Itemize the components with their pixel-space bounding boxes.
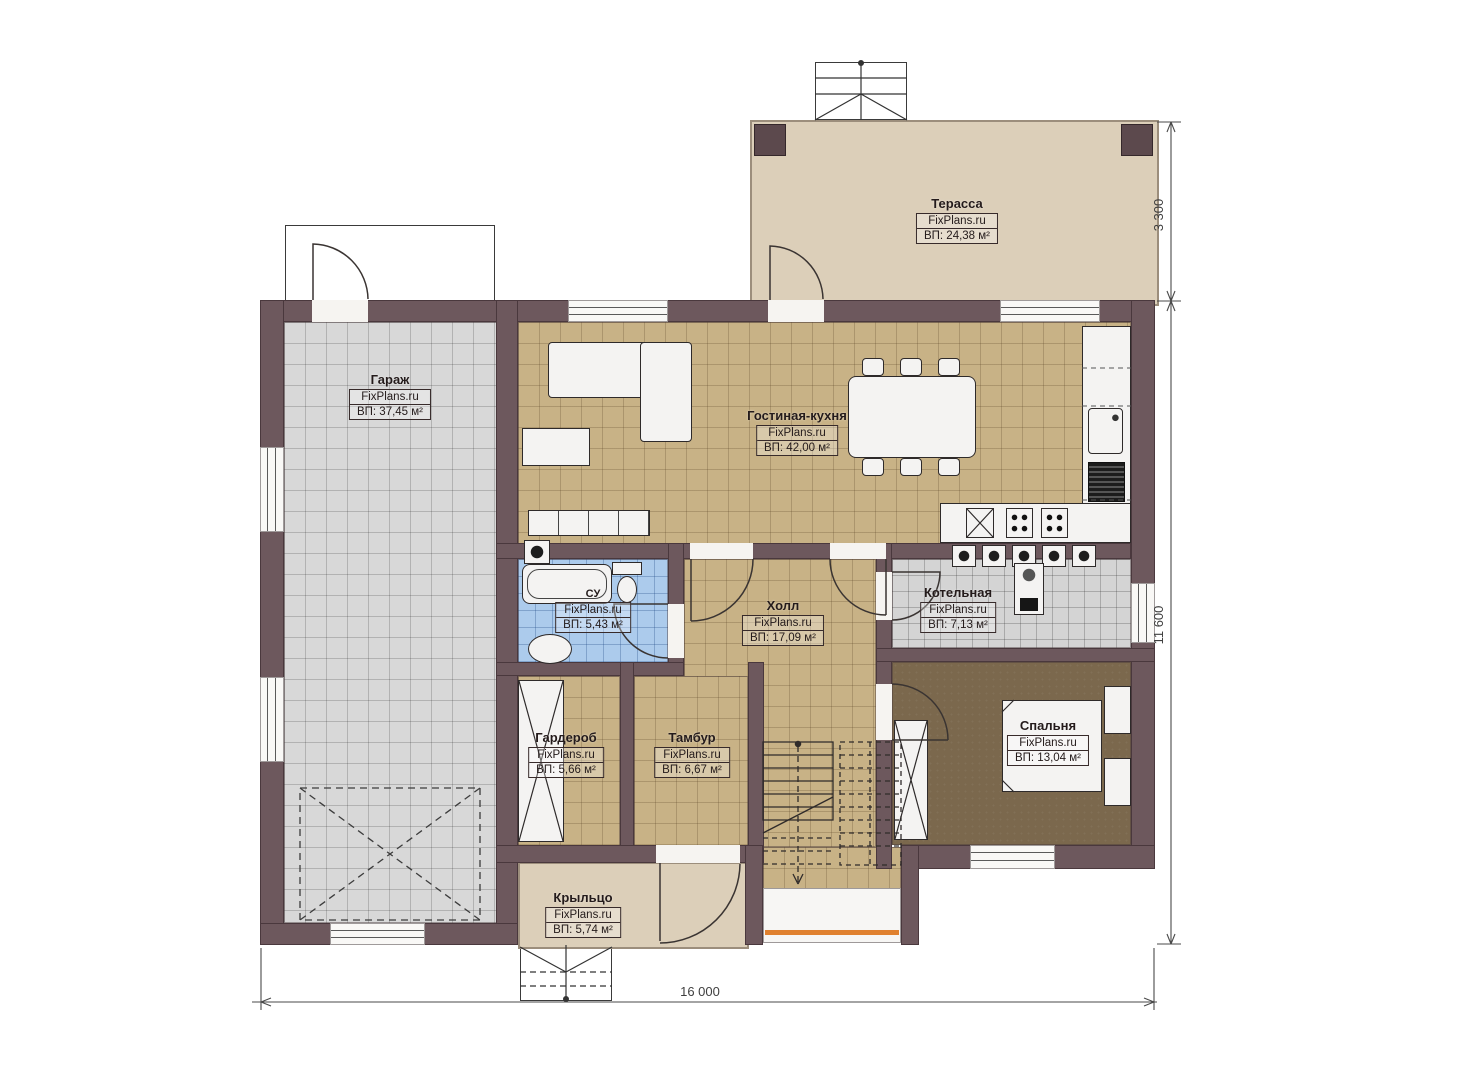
bar-stool bbox=[1072, 545, 1096, 567]
boiler-burner bbox=[1020, 598, 1038, 611]
nightstand bbox=[1104, 686, 1131, 734]
window-boiler-right bbox=[1131, 583, 1155, 643]
room-tag: FixPlans.ru ВП: 24,38 м² bbox=[916, 213, 998, 244]
boiler-door-opening bbox=[876, 572, 892, 620]
dining-chair bbox=[862, 458, 884, 476]
wall-left bbox=[260, 300, 284, 945]
room-tag: FixPlans.ru ВП: 5,66 м² bbox=[528, 747, 604, 778]
room-area: ВП: 37,45 м² bbox=[350, 404, 430, 419]
dining-chair bbox=[862, 358, 884, 376]
dining-chair bbox=[900, 358, 922, 376]
room-tag: FixPlans.ru ВП: 6,67 м² bbox=[654, 747, 730, 778]
bar-stool bbox=[952, 545, 976, 567]
wall-stairbay-left bbox=[745, 845, 763, 945]
room-label-wardrobe: Гардероб FixPlans.ru ВП: 5,66 м² bbox=[528, 730, 604, 778]
room-label-terrace: Терасса FixPlans.ru ВП: 24,38 м² bbox=[916, 196, 998, 244]
room-label-living-kitchen: Гостиная-кухня FixPlans.ru ВП: 42,00 м² bbox=[747, 408, 847, 456]
bar-stool bbox=[1042, 545, 1066, 567]
window-garage-left-1 bbox=[260, 447, 284, 532]
room-brand: FixPlans.ru bbox=[350, 390, 430, 404]
nightstand bbox=[1104, 758, 1131, 806]
bedroom-wardrobe-cabinet bbox=[894, 720, 928, 840]
bedroom-door-opening bbox=[876, 684, 892, 740]
room-area: ВП: 5,66 м² bbox=[529, 762, 603, 777]
hall-opening-1 bbox=[690, 543, 753, 559]
room-name: Спальня bbox=[1007, 718, 1089, 733]
room-label-garage: Гараж FixPlans.ru ВП: 37,45 м² bbox=[349, 372, 431, 420]
bath-door-opening bbox=[668, 604, 684, 658]
room-label-bathroom: СУ FixPlans.ru ВП: 5,43 м² bbox=[555, 588, 631, 633]
dining-chair bbox=[900, 458, 922, 476]
room-brand: FixPlans.ru bbox=[921, 603, 995, 617]
dining-table bbox=[848, 376, 976, 458]
terrace-door-opening bbox=[768, 300, 824, 322]
bar-stool bbox=[982, 545, 1006, 567]
window-bedroom-bottom bbox=[970, 845, 1055, 869]
entrance-threshold bbox=[765, 930, 899, 935]
porch-door-opening bbox=[656, 845, 740, 863]
room-area: ВП: 13,04 м² bbox=[1008, 750, 1088, 765]
room-brand: FixPlans.ru bbox=[757, 426, 837, 440]
wall-boiler-bedroom bbox=[876, 648, 1155, 662]
room-tag: FixPlans.ru ВП: 17,09 м² bbox=[742, 615, 824, 646]
terrace-column-right bbox=[1121, 124, 1153, 156]
hall-opening-2 bbox=[830, 543, 886, 559]
terrace-column-left bbox=[754, 124, 786, 156]
room-name: Тамбур bbox=[654, 730, 730, 745]
window-garage-bottom bbox=[330, 923, 425, 945]
garage-door-opening bbox=[312, 300, 368, 322]
window-living-top bbox=[568, 300, 668, 322]
room-label-hall: Холл FixPlans.ru ВП: 17,09 м² bbox=[742, 598, 824, 646]
porch-steps bbox=[520, 945, 612, 1001]
room-name: Крыльцо bbox=[545, 890, 621, 905]
room-tag: FixPlans.ru ВП: 13,04 м² bbox=[1007, 735, 1089, 766]
wall-stairbay-right bbox=[901, 845, 919, 945]
floor-plan: 3 300 11 600 16 000 Терасса FixPlans.ru … bbox=[0, 0, 1473, 1080]
kitchen-appliance bbox=[1088, 462, 1125, 502]
dining-chair bbox=[938, 358, 960, 376]
dining-chair bbox=[938, 458, 960, 476]
room-tag: FixPlans.ru ВП: 37,45 м² bbox=[349, 389, 431, 420]
room-brand: FixPlans.ru bbox=[1008, 736, 1088, 750]
bathroom-sink bbox=[528, 634, 572, 664]
room-name: Гардероб bbox=[528, 730, 604, 745]
wall-wardrobe-vestibule bbox=[620, 662, 634, 847]
room-label-boiler: Котельная FixPlans.ru ВП: 7,13 м² bbox=[920, 585, 996, 633]
wall-bath-bottom bbox=[496, 662, 684, 676]
room-tag: FixPlans.ru ВП: 5,74 м² bbox=[545, 907, 621, 938]
room-area: ВП: 24,38 м² bbox=[917, 228, 997, 243]
room-brand: FixPlans.ru bbox=[529, 748, 603, 762]
room-name: Гараж bbox=[349, 372, 431, 387]
coffee-table bbox=[522, 428, 590, 466]
room-brand: FixPlans.ru bbox=[743, 616, 823, 630]
room-tag: FixPlans.ru ВП: 42,00 м² bbox=[756, 425, 838, 456]
window-garage-left-2 bbox=[260, 677, 284, 762]
room-name: Котельная bbox=[920, 585, 996, 600]
entry-canopy bbox=[285, 225, 495, 302]
window-kitchen-top bbox=[1000, 300, 1100, 322]
sofa-chaise bbox=[640, 342, 692, 442]
room-name: Гостиная-кухня bbox=[747, 408, 847, 423]
washing-machine bbox=[524, 540, 550, 564]
room-area: ВП: 5,43 м² bbox=[556, 617, 630, 632]
room-tag: FixPlans.ru ВП: 7,13 м² bbox=[920, 602, 996, 633]
dim-house-width: 16 000 bbox=[680, 984, 720, 999]
toilet-tank bbox=[612, 562, 642, 575]
room-tag: FixPlans.ru ВП: 5,43 м² bbox=[555, 602, 631, 633]
room-area: ВП: 7,13 м² bbox=[921, 617, 995, 632]
room-name: Терасса bbox=[916, 196, 998, 211]
wall-vestibule-hall bbox=[748, 662, 764, 847]
room-area: ВП: 17,09 м² bbox=[743, 630, 823, 645]
room-label-bedroom: Спальня FixPlans.ru ВП: 13,04 м² bbox=[1007, 718, 1089, 766]
room-brand: FixPlans.ru bbox=[546, 908, 620, 922]
tv-stand bbox=[528, 510, 650, 536]
room-label-porch: Крыльцо FixPlans.ru ВП: 5,74 м² bbox=[545, 890, 621, 938]
room-name: Холл bbox=[742, 598, 824, 613]
room-area: ВП: 42,00 м² bbox=[757, 440, 837, 455]
stove-burners bbox=[1006, 508, 1033, 538]
room-brand: FixPlans.ru bbox=[655, 748, 729, 762]
room-label-vestibule: Тамбур FixPlans.ru ВП: 6,67 м² bbox=[654, 730, 730, 778]
dishwasher bbox=[966, 508, 994, 538]
kitchen-sink bbox=[1088, 408, 1123, 454]
terrace-steps bbox=[815, 62, 907, 120]
room-area: ВП: 6,67 м² bbox=[655, 762, 729, 777]
room-brand: FixPlans.ru bbox=[917, 214, 997, 228]
stove-burners bbox=[1041, 508, 1068, 538]
room-brand: FixPlans.ru bbox=[556, 603, 630, 617]
room-name: СУ bbox=[555, 588, 631, 600]
room-area: ВП: 5,74 м² bbox=[546, 922, 620, 937]
